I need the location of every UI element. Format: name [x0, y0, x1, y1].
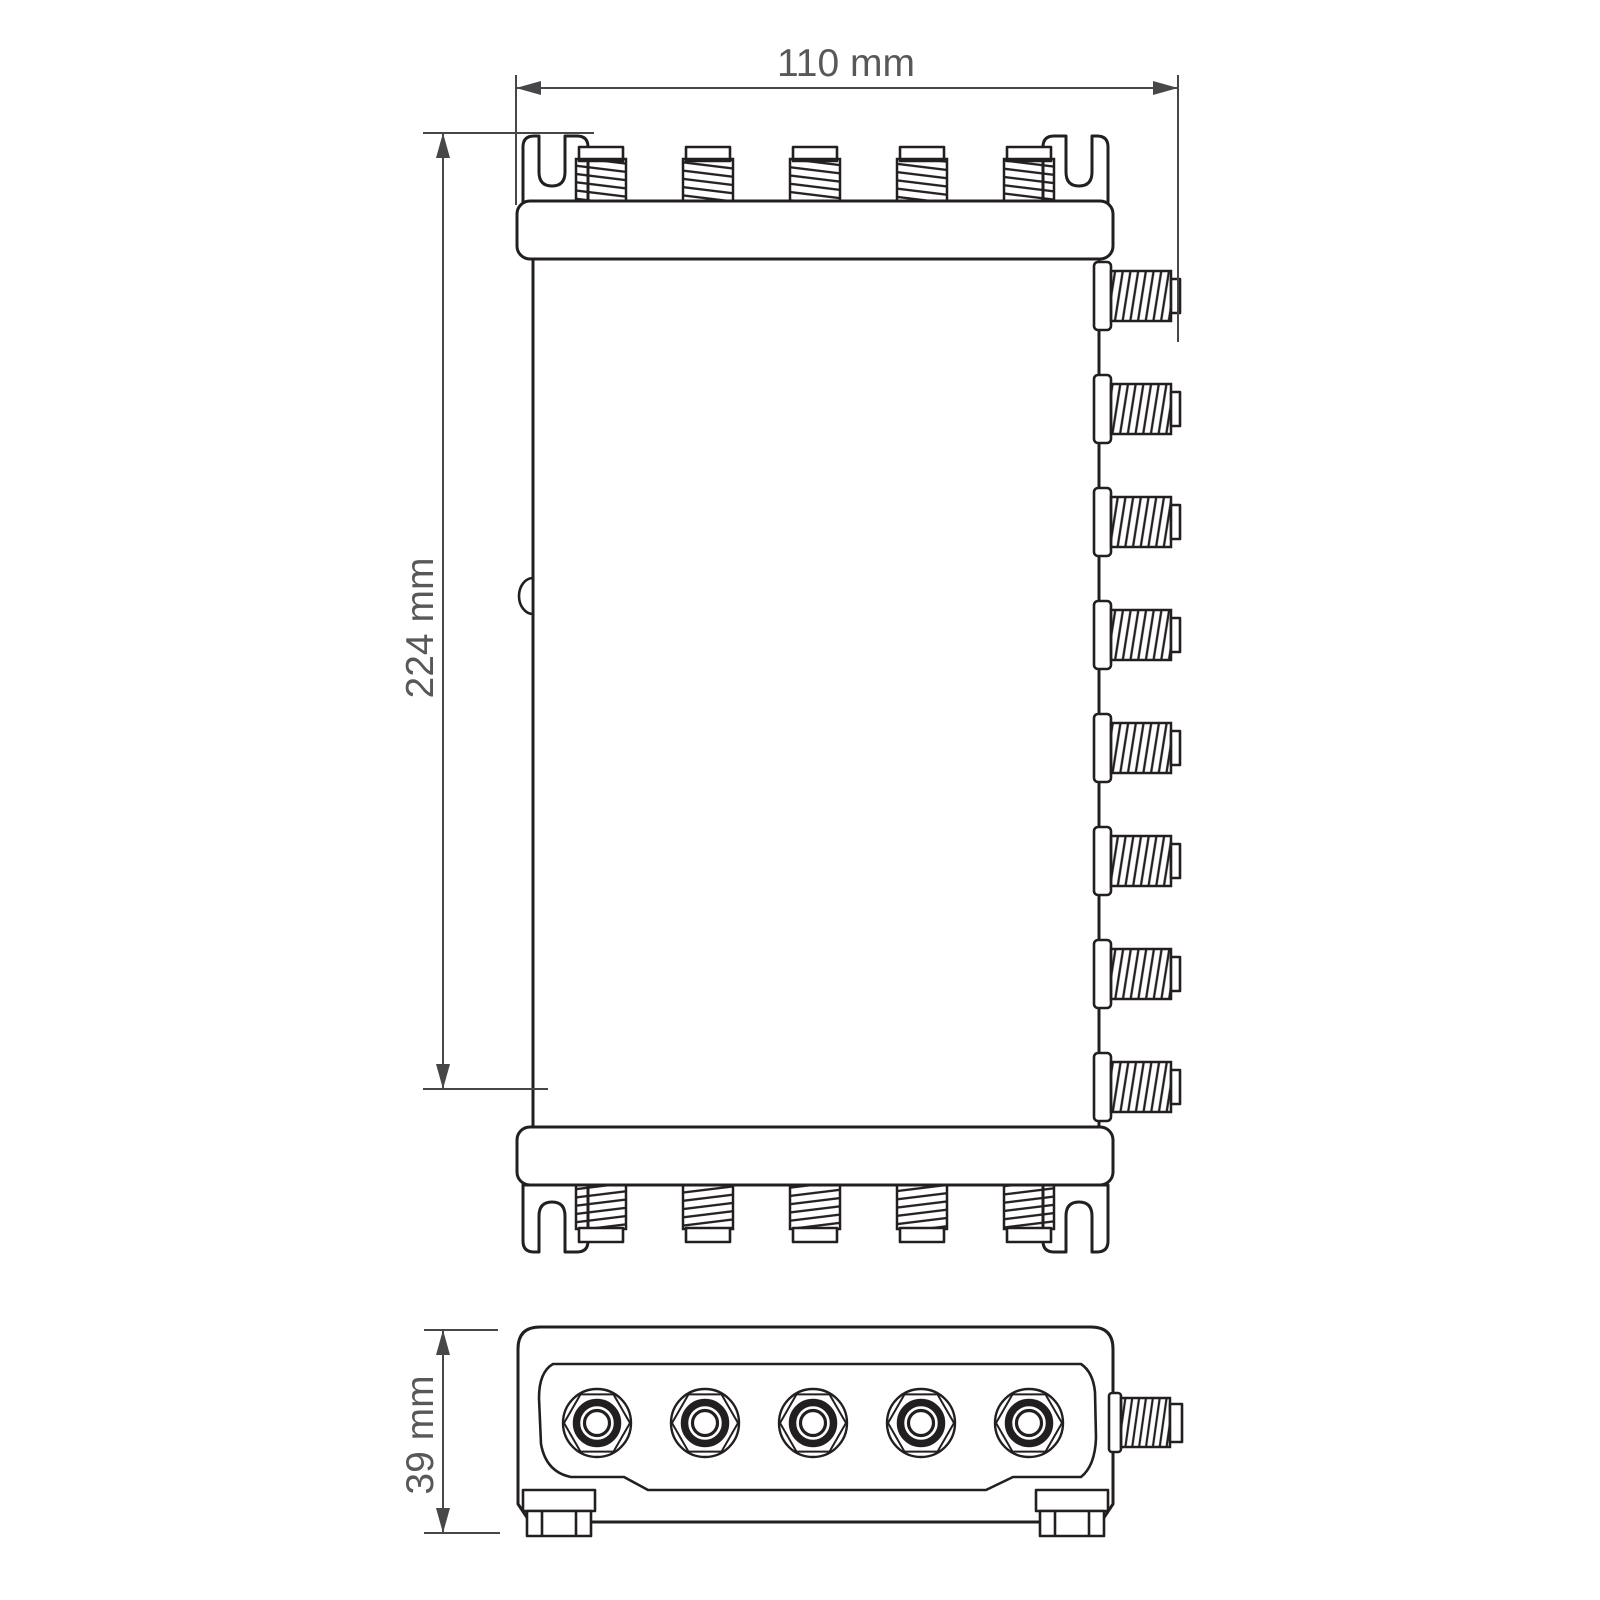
top-connector	[576, 147, 626, 204]
connector-threads	[683, 159, 733, 204]
connector-tip	[1171, 957, 1180, 991]
bottom-connector	[1004, 1185, 1054, 1242]
multiswitch-dimension-drawing: 110 mm 224 mm	[0, 0, 1600, 1600]
connector-threads	[1111, 949, 1171, 999]
connector-tip	[1171, 844, 1180, 878]
arrowhead-right	[1153, 81, 1178, 95]
connector-threads	[790, 1185, 840, 1229]
connector-threads	[1111, 1062, 1171, 1112]
arrowhead-bottom	[436, 1508, 450, 1533]
top-connector	[790, 147, 840, 204]
connector-tip	[900, 1228, 944, 1242]
connector-flange	[1094, 940, 1111, 1008]
connector-flange	[1094, 1053, 1111, 1121]
connector-tip	[1171, 731, 1180, 765]
side-connector	[1094, 488, 1180, 556]
arrowhead-top	[436, 1330, 450, 1355]
connector-tip	[1171, 1070, 1180, 1104]
side-notch	[519, 578, 533, 614]
front-view	[517, 136, 1180, 1252]
connector-threads	[1111, 384, 1171, 434]
connector-threads	[1121, 1398, 1170, 1447]
connector-flange	[1094, 714, 1111, 782]
connector-tip	[1170, 1404, 1182, 1442]
side-connector	[1094, 1053, 1180, 1121]
connector-threads	[790, 159, 840, 204]
arrowhead-left	[516, 81, 541, 95]
arrowhead-bottom	[436, 1064, 450, 1089]
foot-bracket	[1040, 1511, 1104, 1536]
bottom-view-side-connector	[1109, 1393, 1182, 1452]
top-connector	[1004, 147, 1054, 204]
drawing-canvas: 110 mm 224 mm	[0, 0, 1600, 1600]
top-connectors	[576, 147, 1054, 204]
connector-flange	[1094, 488, 1111, 556]
height-dimension-label: 224 mm	[399, 558, 442, 699]
connector-flange	[1094, 375, 1111, 443]
connector-threads	[1111, 497, 1171, 547]
connector-threads	[683, 1185, 733, 1229]
depth-dimension-label: 39 mm	[399, 1375, 442, 1494]
connector-threads	[897, 159, 947, 204]
side-connectors	[1094, 262, 1180, 1121]
connector-flange	[1094, 601, 1111, 669]
connector-tip	[1171, 505, 1180, 539]
foot-bracket	[527, 1511, 591, 1536]
connector-threads	[1111, 836, 1171, 886]
side-connector	[1094, 827, 1180, 895]
bottom-cap	[517, 1127, 1113, 1185]
bottom-connector	[683, 1185, 733, 1242]
foot-plate	[523, 1490, 595, 1511]
dimension-depth: 39 mm	[399, 1330, 500, 1533]
top-cap	[517, 201, 1113, 259]
connector-tip	[686, 1228, 730, 1242]
foot-plate	[1036, 1490, 1108, 1511]
connector-threads	[1004, 159, 1054, 204]
connector-threads	[1111, 723, 1171, 773]
side-connector	[1094, 262, 1180, 330]
connector-threads	[1004, 1185, 1054, 1229]
side-connector	[1094, 714, 1180, 782]
top-connector	[683, 147, 733, 204]
bottom-view-foot-left	[523, 1490, 595, 1536]
top-connector	[897, 147, 947, 204]
bottom-connector	[790, 1185, 840, 1242]
connector-flange	[1094, 827, 1111, 895]
connector-threads	[576, 1185, 626, 1229]
bottom-view-foot-right	[1036, 1490, 1108, 1536]
connector-tip	[579, 1228, 623, 1242]
connector-flange	[1109, 1393, 1121, 1452]
side-connector	[1094, 940, 1180, 1008]
connector-threads	[897, 1185, 947, 1229]
width-dimension-label: 110 mm	[777, 42, 915, 85]
connector-tip	[793, 1228, 837, 1242]
connector-tip	[1007, 1228, 1051, 1242]
side-connector	[1094, 601, 1180, 669]
connector-threads	[1111, 610, 1171, 660]
arrowhead-top	[436, 133, 450, 158]
side-connector	[1094, 375, 1180, 443]
connector-flange	[1094, 262, 1111, 330]
connector-threads	[576, 159, 626, 204]
connector-threads	[1111, 271, 1171, 321]
bottom-connectors	[576, 1185, 1054, 1242]
connector-tip	[1171, 392, 1180, 426]
bottom-view	[518, 1327, 1182, 1536]
connector-tip	[1171, 618, 1180, 652]
bottom-connector	[576, 1185, 626, 1242]
bottom-connector	[897, 1185, 947, 1242]
device-body	[533, 256, 1099, 1130]
